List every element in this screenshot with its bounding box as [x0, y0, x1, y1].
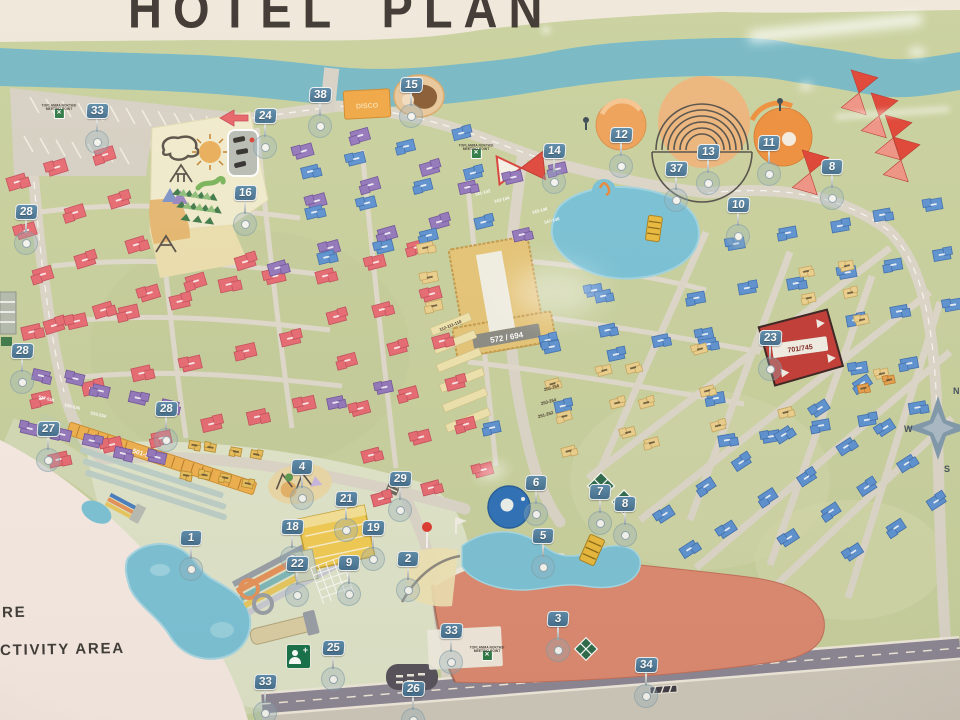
marker-pole — [768, 151, 770, 164]
marker-anchor — [280, 546, 304, 570]
map-marker-28-11: 28 — [14, 204, 38, 255]
map-marker-19-20: 19 — [361, 520, 385, 571]
marker-flag: 13 — [696, 144, 720, 160]
marker-flag: 33 — [439, 623, 463, 639]
marker-flag: 37 — [664, 161, 688, 177]
marker-anchor — [542, 170, 566, 194]
marker-pole — [348, 571, 350, 584]
marker-flag: 23 — [758, 330, 782, 346]
marker-anchor — [290, 486, 314, 510]
marker-flag: 21 — [334, 491, 358, 507]
map-marker-24-1: 24 — [253, 108, 277, 159]
map-marker-1-24: 1 — [179, 530, 203, 581]
marker-anchor — [401, 708, 425, 720]
marker-pole — [624, 512, 626, 525]
marker-anchor — [308, 114, 332, 138]
marker-flag: 29 — [388, 471, 412, 487]
marker-anchor — [321, 667, 345, 691]
marker-anchor — [696, 171, 720, 195]
marker-flag: 7 — [588, 484, 611, 500]
map-marker-10-10: 10 — [726, 197, 750, 248]
map-marker-18-19: 18 — [280, 519, 304, 570]
marker-flag: 12 — [609, 127, 633, 143]
map-marker-28-13: 28 — [10, 343, 34, 394]
marker-pole — [645, 673, 647, 686]
map-marker-22-22: 22 — [285, 556, 309, 607]
marker-pole — [264, 124, 266, 137]
marker-flag: 6 — [524, 475, 547, 491]
marker-anchor — [399, 104, 423, 128]
map-marker-29-17: 29 — [388, 471, 412, 522]
marker-pole — [264, 690, 266, 703]
marker-flag: 10 — [726, 197, 750, 213]
map-marker-33-33: 33 — [439, 623, 463, 674]
marker-pole — [47, 437, 49, 450]
marker-flag: 25 — [321, 640, 345, 656]
marker-anchor — [85, 130, 109, 154]
marker-anchor — [531, 555, 555, 579]
map-marker-37-6: 37 — [664, 161, 688, 212]
map-marker-26-34: 26 — [401, 681, 425, 720]
map-marker-38-2: 38 — [308, 87, 332, 138]
marker-pole — [399, 487, 401, 500]
marker-flag: 22 — [285, 556, 309, 572]
marker-flag: 28 — [154, 401, 178, 417]
marker-pole — [319, 103, 321, 116]
marker-pole — [535, 491, 537, 504]
marker-flag: 33 — [253, 674, 277, 690]
marker-anchor — [14, 231, 38, 255]
map-marker-25-31: 25 — [321, 640, 345, 691]
marker-anchor — [546, 638, 570, 662]
map-marker-8-27: 8 — [613, 496, 637, 547]
marker-anchor — [361, 547, 385, 571]
marker-flag: 4 — [290, 459, 313, 475]
map-marker-11-8: 11 — [757, 135, 781, 186]
marker-pole — [244, 201, 246, 214]
marker-flag: 19 — [361, 520, 385, 536]
marker-flag: 34 — [634, 657, 658, 673]
marker-anchor — [726, 224, 750, 248]
map-marker-6-25: 6 — [524, 475, 548, 526]
marker-anchor — [285, 583, 309, 607]
marker-anchor — [253, 701, 277, 720]
marker-flag: 3 — [546, 611, 569, 627]
marker-pole — [296, 572, 298, 585]
marker-pole — [21, 359, 23, 372]
marker-flag: 38 — [308, 87, 332, 103]
map-marker-21-18: 21 — [334, 491, 358, 542]
marker-pole — [557, 627, 559, 640]
marker-pole — [372, 536, 374, 549]
marker-pole — [410, 93, 412, 106]
marker-flag: 18 — [280, 519, 304, 535]
map-marker-34-35: 34 — [634, 657, 658, 708]
marker-pole — [599, 500, 601, 513]
marker-flag: 1 — [179, 530, 202, 546]
marker-anchor — [337, 582, 361, 606]
marker-flag: 5 — [531, 528, 554, 544]
marker-anchor — [233, 212, 257, 236]
marker-pole — [25, 220, 27, 233]
marker-pole — [831, 175, 833, 188]
marker-pole — [165, 417, 167, 430]
marker-flag: 28 — [14, 204, 38, 220]
marker-pole — [291, 535, 293, 548]
marker-anchor — [334, 518, 358, 542]
marker-pole — [190, 546, 192, 559]
map-marker-3-29: 3 — [546, 611, 570, 662]
marker-anchor — [179, 557, 203, 581]
marker-flag: 8 — [613, 496, 636, 512]
map-marker-16-12: 16 — [233, 185, 257, 236]
marker-anchor — [396, 578, 420, 602]
marker-anchor — [154, 428, 178, 452]
marker-flag: 14 — [542, 143, 566, 159]
marker-anchor — [758, 357, 782, 381]
marker-anchor — [634, 684, 658, 708]
map-marker-4-16: 4 — [290, 459, 314, 510]
marker-pole — [553, 159, 555, 172]
marker-anchor — [253, 135, 277, 159]
marker-pole — [96, 119, 98, 132]
marker-anchor — [36, 448, 60, 472]
marker-anchor — [613, 523, 637, 547]
marker-pole — [407, 567, 409, 580]
marker-pole — [450, 639, 452, 652]
marker-anchor — [664, 188, 688, 212]
marker-flag: 28 — [10, 343, 34, 359]
marker-anchor — [588, 511, 612, 535]
marker-flag: 26 — [401, 681, 425, 697]
map-marker-15-3: 15 — [399, 77, 423, 128]
marker-flag: 11 — [757, 135, 780, 151]
marker-anchor — [820, 186, 844, 210]
marker-pole — [332, 656, 334, 669]
marker-pole — [345, 507, 347, 520]
map-marker-14-4: 14 — [542, 143, 566, 194]
map-marker-27-15: 27 — [36, 421, 60, 472]
marker-anchor — [524, 502, 548, 526]
map-marker-33-0: 33 — [85, 103, 109, 154]
marker-pole — [620, 143, 622, 156]
map-marker-13-7: 13 — [696, 144, 720, 195]
marker-anchor — [757, 162, 781, 186]
marker-pole — [412, 697, 414, 710]
marker-flag: 27 — [36, 421, 60, 437]
marker-pole — [542, 544, 544, 557]
map-marker-2-23: 2 — [396, 551, 420, 602]
map-marker-28-14: 28 — [154, 401, 178, 452]
marker-flag: 2 — [396, 551, 419, 567]
marker-flag: 16 — [233, 185, 257, 201]
map-marker-12-5: 12 — [609, 127, 633, 178]
map-marker-8-9: 8 — [820, 159, 844, 210]
marker-pole — [675, 177, 677, 190]
hotel-plan-photo: DISCO — [0, 0, 960, 720]
marker-pole — [769, 346, 771, 359]
marker-pole — [707, 160, 709, 173]
marker-pole — [301, 475, 303, 488]
marker-flag: 33 — [85, 103, 109, 119]
map-marker-7-26: 7 — [588, 484, 612, 535]
marker-flag: 8 — [820, 159, 843, 175]
marker-anchor — [10, 370, 34, 394]
map-markers: 33 24 38 15 14 12 — [0, 0, 960, 720]
map-marker-23-30: 23 — [758, 330, 782, 381]
map-marker-5-28: 5 — [531, 528, 555, 579]
marker-anchor — [609, 154, 633, 178]
marker-anchor — [439, 650, 463, 674]
marker-pole — [737, 213, 739, 226]
marker-flag: 15 — [399, 77, 423, 93]
map-marker-33-32: 33 — [253, 674, 277, 720]
marker-flag: 9 — [337, 555, 360, 571]
marker-flag: 24 — [253, 108, 277, 124]
marker-anchor — [388, 498, 412, 522]
map-marker-9-21: 9 — [337, 555, 361, 606]
